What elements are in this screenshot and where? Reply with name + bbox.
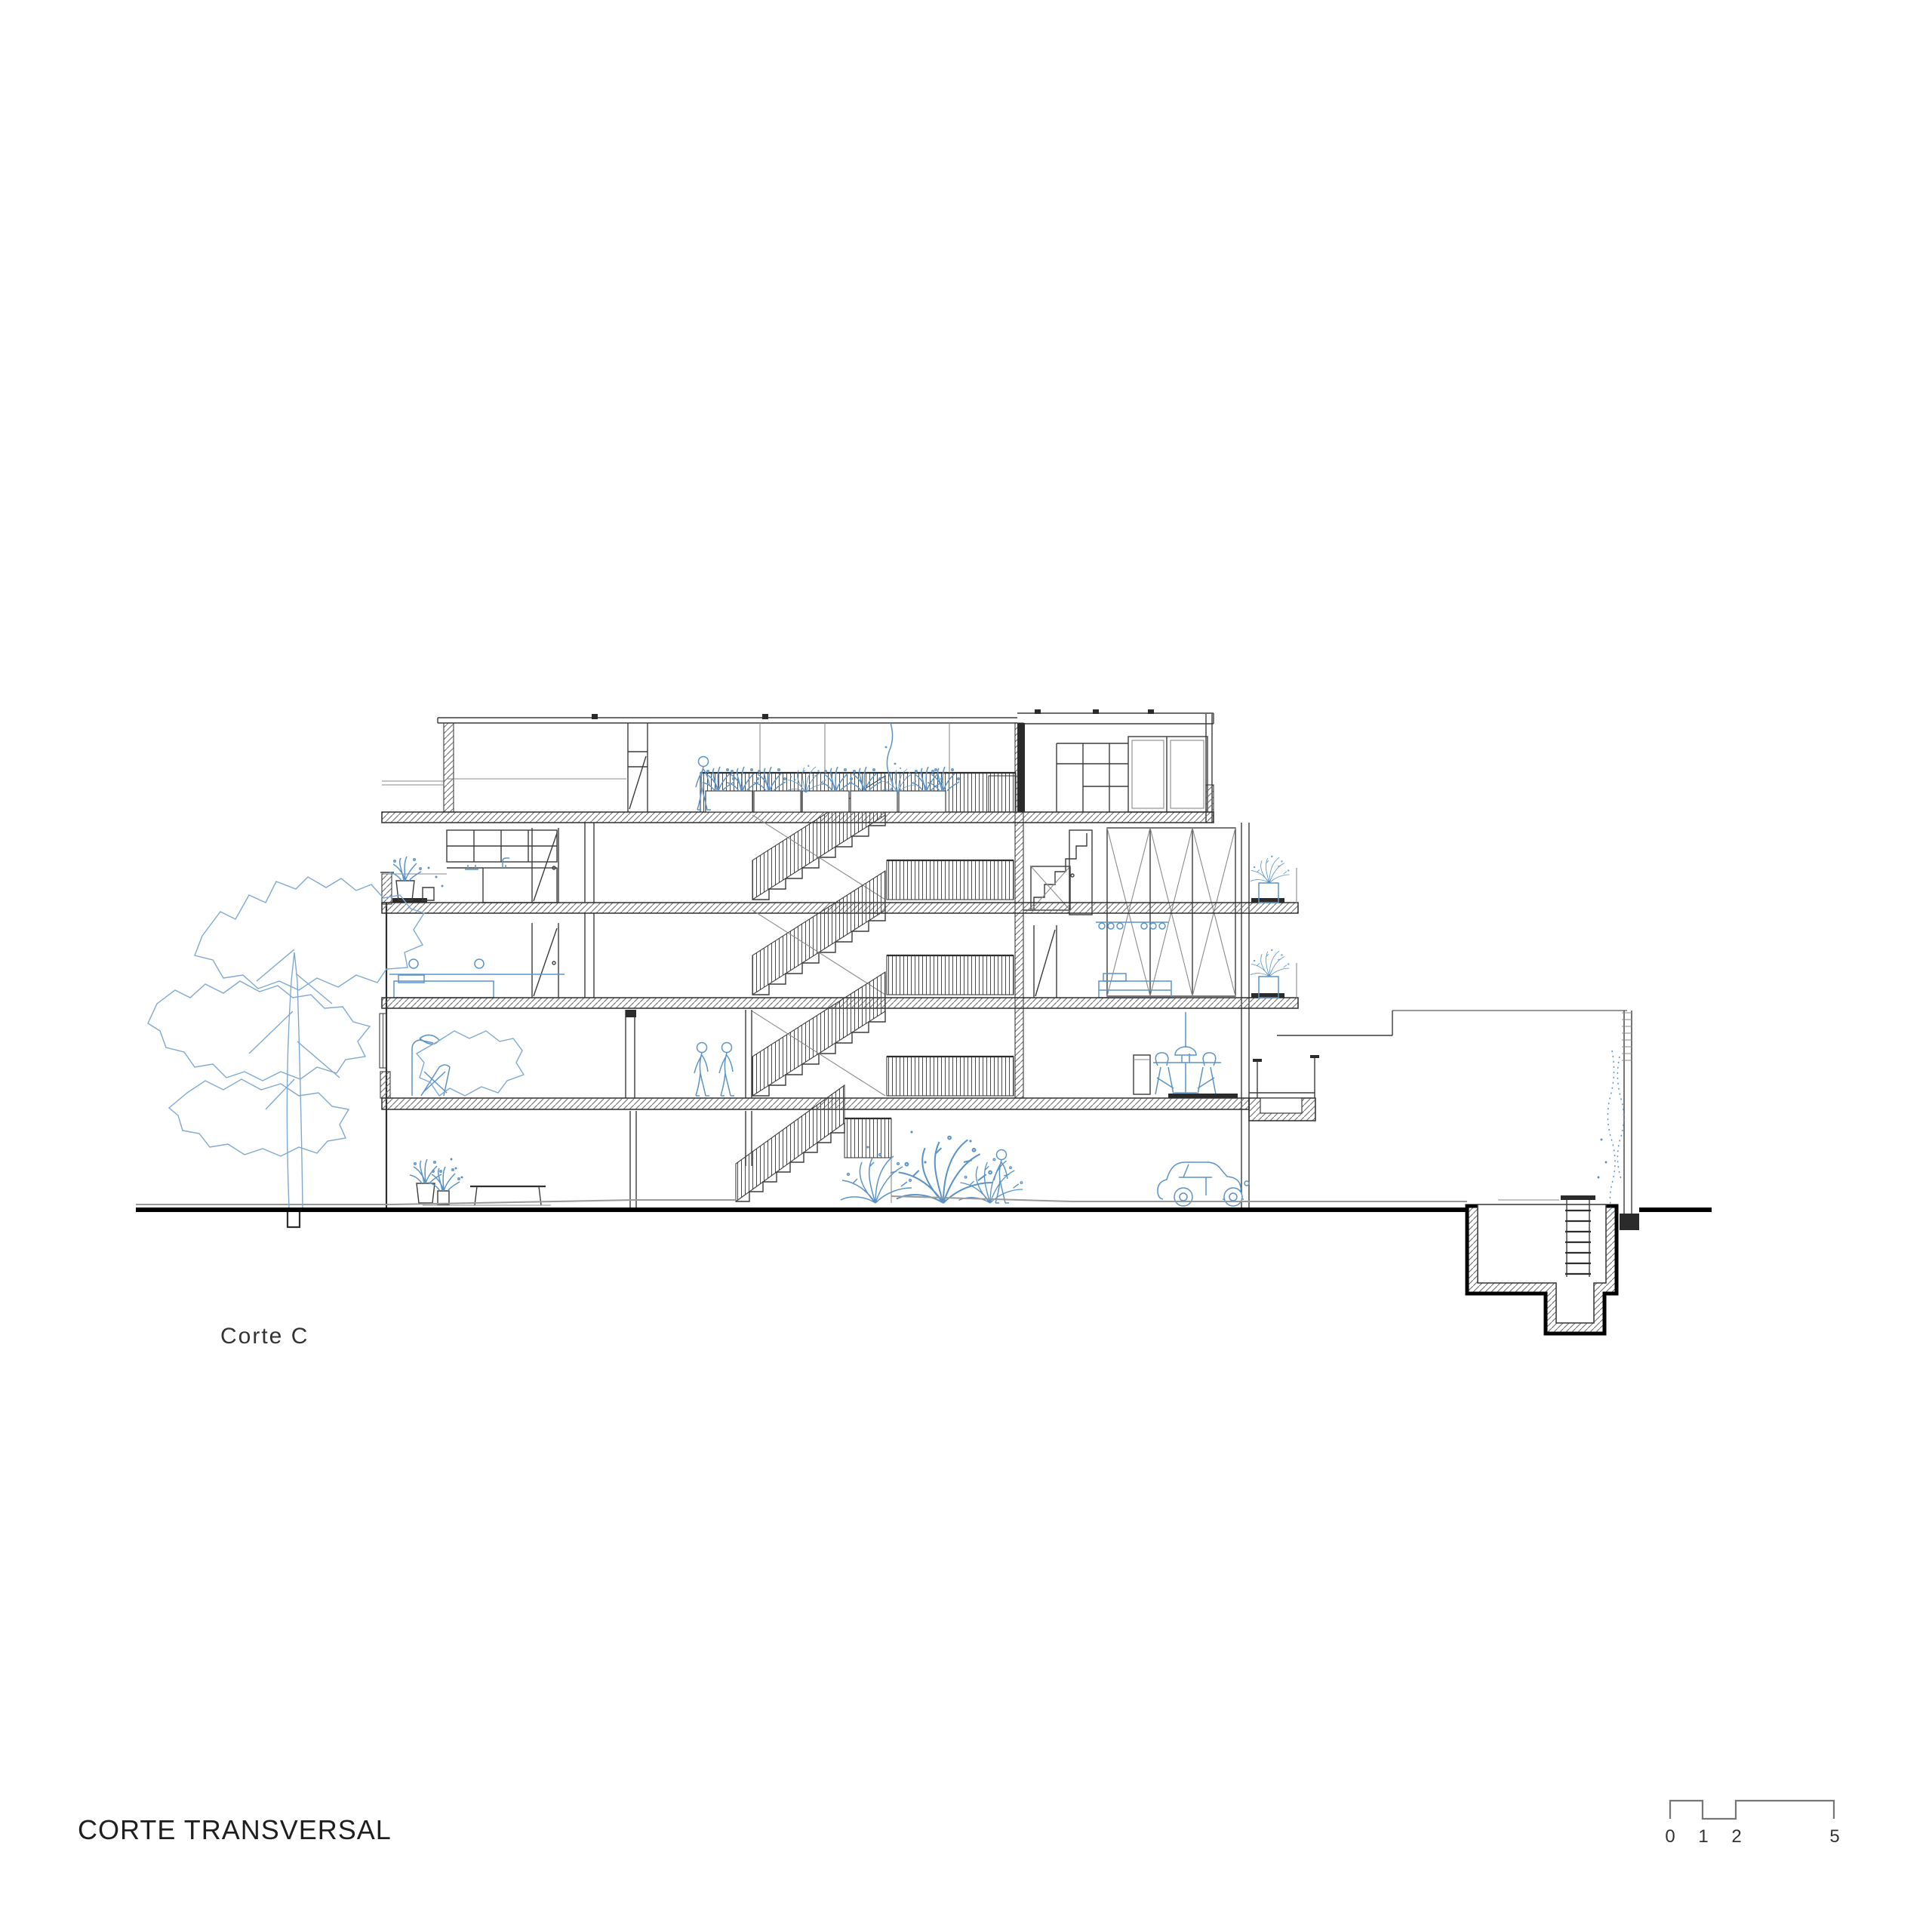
roof-terrace (700, 723, 1016, 812)
sheet-title: CORTE TRANSVERSAL (78, 1814, 392, 1845)
kitchen (447, 830, 557, 903)
top-floor-interior (447, 723, 648, 812)
scale-tick-1: 1 (1698, 1826, 1708, 1847)
drawing-sheet: Corte C CORTE TRANSVERSAL 0 1 2 5 (0, 0, 1932, 1932)
scale-tick-5: 5 (1829, 1826, 1839, 1847)
scale-tick-2: 2 (1731, 1826, 1741, 1847)
ground-floor-lobby (410, 1158, 551, 1206)
bedroom-left (389, 959, 565, 998)
lounge (412, 1035, 450, 1096)
wall-vine (1598, 1051, 1624, 1217)
door-level3-left (532, 923, 558, 998)
top-floor-left-wall (444, 723, 454, 812)
dining-room (1134, 1012, 1221, 1094)
basement-cistern (1467, 1195, 1639, 1334)
person-couple-1 (694, 1043, 709, 1097)
scale-bar: 0 1 2 5 (1665, 1801, 1839, 1847)
door-level4-left (532, 828, 558, 903)
person-couple-2 (719, 1043, 734, 1097)
section-drawing-canvas: Corte C CORTE TRANSVERSAL 0 1 2 5 (0, 0, 1932, 1932)
balcony-planter-left (389, 857, 444, 900)
penthouse (1057, 714, 1214, 823)
scale-tick-0: 0 (1665, 1826, 1675, 1847)
floor-slabs (382, 812, 1319, 1121)
car (1158, 1162, 1249, 1206)
tree (148, 877, 524, 1207)
section-label: Corte C (220, 1324, 309, 1349)
stairs-and-guardrails (389, 723, 1297, 1203)
balcony-plants-right (1251, 856, 1297, 998)
roof-edge (438, 709, 1214, 724)
